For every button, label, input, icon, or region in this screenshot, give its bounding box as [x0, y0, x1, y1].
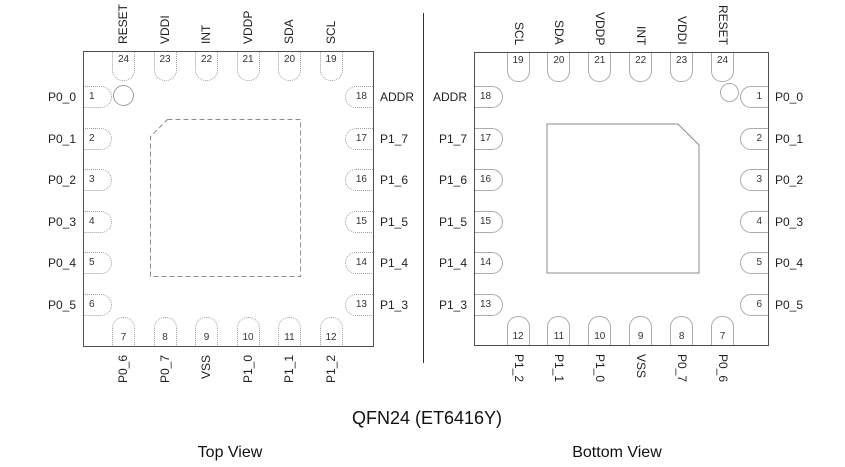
- pin-13: 13: [345, 294, 374, 316]
- pin-label: P1_2: [512, 354, 525, 382]
- pin-number: 12: [508, 331, 529, 343]
- pin-5: 5: [740, 252, 769, 274]
- pin-number: 12: [321, 332, 342, 344]
- pin-number: 5: [756, 257, 762, 269]
- pin-17: 17: [345, 128, 374, 150]
- pin-number: 17: [356, 133, 367, 145]
- pin1-marker: [720, 83, 739, 102]
- pin-24: 24: [711, 52, 734, 82]
- pin-9: 9: [629, 316, 652, 346]
- pin-label: P1_3: [407, 297, 467, 313]
- pin-label: P1_0: [593, 354, 606, 382]
- pin-15: 15: [474, 211, 503, 233]
- pin-label: P0_1: [775, 131, 835, 147]
- pin-number: 8: [671, 331, 692, 343]
- pin-6: 6: [740, 294, 769, 316]
- pin-label: P0_5: [16, 297, 76, 313]
- caption-bottom-view: Bottom View: [572, 444, 662, 462]
- pin-number: 18: [356, 91, 367, 103]
- pin-label: P0_4: [16, 255, 76, 271]
- pin-label: VSS: [200, 355, 213, 379]
- pin-label: VSS: [634, 354, 647, 378]
- pin-number: 2: [756, 133, 762, 145]
- pin-number: 23: [155, 54, 176, 66]
- pin-number: 3: [89, 174, 95, 186]
- pin-number: 4: [756, 216, 762, 228]
- pin-16: 16: [345, 169, 374, 191]
- pin-number: 19: [321, 54, 342, 66]
- pin-20: 20: [278, 51, 301, 81]
- pin-label: P0_3: [775, 214, 835, 230]
- pin-number: 22: [630, 55, 651, 67]
- pin-21: 21: [588, 52, 611, 82]
- pin-number: 24: [113, 54, 134, 66]
- pin-label: P1_2: [325, 355, 338, 383]
- pin-label: P1_7: [407, 131, 467, 147]
- pin-12: 12: [320, 317, 343, 347]
- pin-14: 14: [345, 252, 374, 274]
- pin-label: P0_6: [117, 355, 130, 383]
- pin-number: 13: [480, 299, 491, 311]
- pin-8: 8: [670, 316, 693, 346]
- pin-11: 11: [547, 316, 570, 346]
- pin-18: 18: [474, 86, 503, 108]
- pin-1: 1: [740, 86, 769, 108]
- pin-19: 19: [507, 52, 530, 82]
- pin-3: 3: [83, 169, 112, 191]
- pin-number: 3: [756, 174, 762, 186]
- pin-label: P0_0: [775, 89, 835, 105]
- exposed-pad-outline: [547, 124, 699, 273]
- pin-number: 22: [196, 54, 217, 66]
- pin-number: 6: [756, 299, 762, 311]
- pin-label: P1_1: [283, 355, 296, 383]
- pin-label: P0_7: [675, 354, 688, 382]
- pin-number: 7: [712, 331, 733, 343]
- pinout-diagram: 24RESET23VDDI22INT21VDDP20SDA19SCL7P0_68…: [0, 0, 845, 467]
- pin-18: 18: [345, 86, 374, 108]
- pin-23: 23: [154, 51, 177, 81]
- pin-label: P1_1: [552, 354, 565, 382]
- pin-label: P1_4: [407, 255, 467, 271]
- pin-number: 2: [89, 133, 95, 145]
- pin-label: RESET: [716, 5, 729, 45]
- pin-label: VDDP: [593, 12, 606, 45]
- pin-23: 23: [670, 52, 693, 82]
- pin-number: 8: [155, 332, 176, 344]
- pin-10: 10: [588, 316, 611, 346]
- pin-label: P0_4: [775, 255, 835, 271]
- pin-label: P1_5: [407, 214, 467, 230]
- pin-number: 23: [671, 55, 692, 67]
- pin-number: 4: [89, 216, 95, 228]
- pin-label: P0_7: [159, 355, 172, 383]
- pin-2: 2: [740, 128, 769, 150]
- pin-6: 6: [83, 294, 112, 316]
- pin-number: 1: [756, 91, 762, 103]
- pin-3: 3: [740, 169, 769, 191]
- pin-22: 22: [629, 52, 652, 82]
- pin-label: SDA: [552, 20, 565, 45]
- pin-label: P0_2: [775, 172, 835, 188]
- pin-number: 20: [279, 54, 300, 66]
- pin-label: VDDP: [242, 11, 255, 44]
- pin-label: SCL: [325, 21, 338, 44]
- pin-number: 14: [480, 257, 491, 269]
- pin-22: 22: [195, 51, 218, 81]
- pin-label: SCL: [512, 22, 525, 45]
- pin-number: 13: [356, 299, 367, 311]
- pin-number: 6: [89, 299, 95, 311]
- pin-number: 14: [356, 257, 367, 269]
- pin-label: P1_0: [242, 355, 255, 383]
- pin-label: P0_0: [16, 89, 76, 105]
- pin-number: 15: [480, 216, 491, 228]
- pin-label: P0_6: [716, 354, 729, 382]
- pin-number: 16: [356, 174, 367, 186]
- pin-number: 17: [480, 133, 491, 145]
- pin1-marker: [113, 85, 134, 106]
- pin-number: 10: [238, 332, 259, 344]
- pin-label: P0_3: [16, 214, 76, 230]
- pin-label: VDDI: [675, 16, 688, 45]
- pin-15: 15: [345, 211, 374, 233]
- pin-number: 9: [630, 331, 651, 343]
- pin-number: 9: [196, 332, 217, 344]
- caption-top-view: Top View: [198, 444, 263, 462]
- pin-17: 17: [474, 128, 503, 150]
- pin-number: 11: [279, 332, 300, 344]
- pin-14: 14: [474, 252, 503, 274]
- package-title: QFN24 (ET6416Y): [352, 408, 502, 429]
- pin-number: 7: [113, 332, 134, 344]
- pin-label: INT: [634, 26, 647, 45]
- pin-19: 19: [320, 51, 343, 81]
- exposed-pad-outline: [151, 120, 301, 277]
- pin-number: 15: [356, 216, 367, 228]
- pin-12: 12: [507, 316, 530, 346]
- pin-11: 11: [278, 317, 301, 347]
- pin-number: 18: [480, 91, 491, 103]
- pin-label: SDA: [283, 19, 296, 44]
- pin-2: 2: [83, 128, 112, 150]
- pin-label: VDDI: [159, 15, 172, 44]
- pin-8: 8: [154, 317, 177, 347]
- pin-20: 20: [547, 52, 570, 82]
- pin-10: 10: [237, 317, 260, 347]
- pin-number: 20: [548, 55, 569, 67]
- pin-number: 1: [89, 91, 95, 103]
- pin-16: 16: [474, 169, 503, 191]
- pin-label: P1_6: [407, 172, 467, 188]
- pin-label: P0_2: [16, 172, 76, 188]
- pin-label: P0_5: [775, 297, 835, 313]
- pin-number: 21: [589, 55, 610, 67]
- pin-label: RESET: [117, 4, 130, 44]
- pin-number: 24: [712, 55, 733, 67]
- pin-21: 21: [237, 51, 260, 81]
- pin-24: 24: [112, 51, 135, 81]
- pin-7: 7: [112, 317, 135, 347]
- pin-9: 9: [195, 317, 218, 347]
- pin-label: INT: [200, 25, 213, 44]
- pin-5: 5: [83, 252, 112, 274]
- pin-number: 11: [548, 331, 569, 343]
- pin-number: 21: [238, 54, 259, 66]
- pin-1: 1: [83, 86, 112, 108]
- pin-label: ADDR: [407, 89, 467, 105]
- pin-number: 5: [89, 257, 95, 269]
- pin-number: 10: [589, 331, 610, 343]
- pin-4: 4: [83, 211, 112, 233]
- pin-number: 16: [480, 174, 491, 186]
- pin-label: P0_1: [16, 131, 76, 147]
- pin-number: 19: [508, 55, 529, 67]
- pin-13: 13: [474, 294, 503, 316]
- pin-4: 4: [740, 211, 769, 233]
- pin-7: 7: [711, 316, 734, 346]
